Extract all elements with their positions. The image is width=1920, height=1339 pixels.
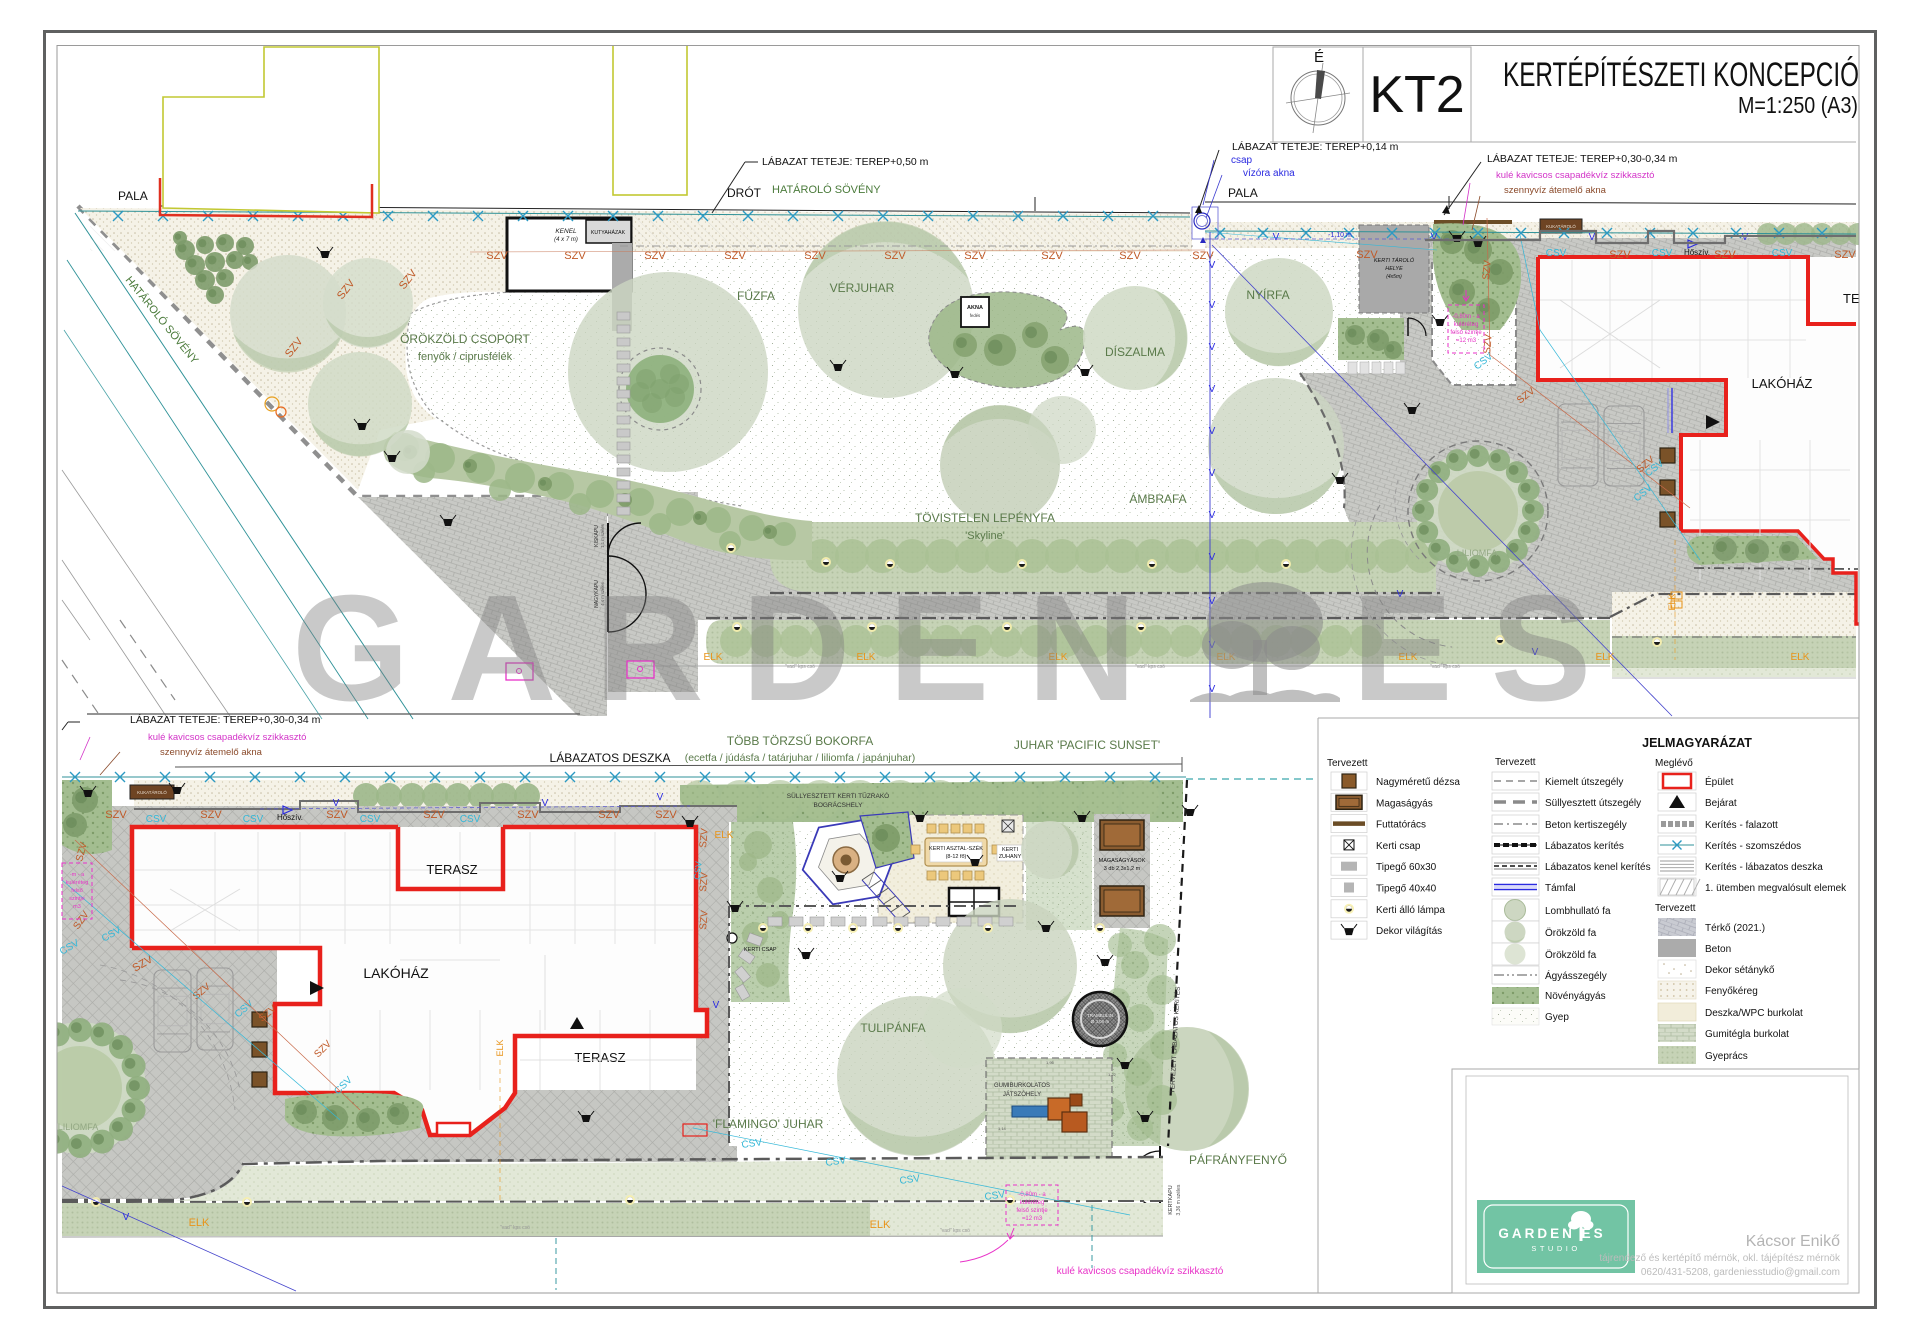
svg-text:FŰZFA: FŰZFA xyxy=(737,288,775,303)
svg-text:VÉRJUHAR: VÉRJUHAR xyxy=(830,280,895,295)
svg-text:KT2: KT2 xyxy=(1369,66,1464,124)
svg-text:HELYE: HELYE xyxy=(1385,266,1403,272)
svg-text:kuléréteg: kuléréteg xyxy=(66,880,89,886)
svg-text:(4 x 7 m): (4 x 7 m) xyxy=(554,237,578,243)
svg-text:SZV: SZV xyxy=(423,809,445,821)
svg-text:(8-12 fő): (8-12 fő) xyxy=(946,854,967,860)
svg-text:Hőszív.: Hőszív. xyxy=(277,813,303,822)
svg-text:ELK: ELK xyxy=(495,1039,505,1056)
svg-text:NYÍRFA: NYÍRFA xyxy=(1246,287,1289,302)
svg-text:ELK: ELK xyxy=(1667,593,1677,610)
svg-text:"vad" kps csö: "vad" kps csö xyxy=(940,1228,970,1234)
svg-text:LILIOMFA: LILIOMFA xyxy=(1457,548,1498,558)
svg-text:KUKATÁROLÓ: KUKATÁROLÓ xyxy=(137,790,167,795)
svg-text:SZV: SZV xyxy=(964,250,986,262)
svg-text:1,95: 1,95 xyxy=(1046,1060,1055,1065)
svg-text:felső szintje: felső szintje xyxy=(1450,330,1482,336)
svg-text:KERTÉPÍTÉSZETI KONCEPCIÓ: KERTÉPÍTÉSZETI KONCEPCIÓ xyxy=(1503,56,1859,94)
svg-text:V: V xyxy=(1589,232,1596,243)
svg-text:Lábazatos kenel kerítés: Lábazatos kenel kerítés xyxy=(1545,862,1651,873)
svg-text:felső: felső xyxy=(71,888,83,894)
svg-text:Beton kertiszegély: Beton kertiszegély xyxy=(1545,820,1627,831)
svg-text:Gyeprács: Gyeprács xyxy=(1705,1051,1748,1062)
svg-text:JELMAGYARÁZAT: JELMAGYARÁZAT xyxy=(1642,735,1752,750)
svg-text:ÁMBRAFA: ÁMBRAFA xyxy=(1129,491,1186,506)
svg-text:Magaságyás: Magaságyás xyxy=(1376,798,1433,809)
svg-text:Beton: Beton xyxy=(1705,944,1731,955)
svg-text:TERASZ: TERASZ xyxy=(574,1050,625,1065)
svg-text:Kerti álló lámpa: Kerti álló lámpa xyxy=(1376,905,1445,916)
svg-text:ELK: ELK xyxy=(1791,652,1810,663)
svg-text:SZV: SZV xyxy=(884,250,906,262)
svg-text:Kácsor Enikő: Kácsor Enikő xyxy=(1746,1233,1840,1250)
svg-text:-m - a: -m - a xyxy=(70,872,85,878)
svg-text:CSV: CSV xyxy=(460,814,481,825)
svg-text:SZV: SZV xyxy=(1119,250,1141,262)
svg-text:V: V xyxy=(1209,260,1216,271)
svg-text:kulé kavicsos csapadékvíz szik: kulé kavicsos csapadékvíz szikkasztó xyxy=(1057,1266,1224,1277)
svg-text:LILIOMFA: LILIOMFA xyxy=(58,1122,99,1132)
svg-text:Tervezett: Tervezett xyxy=(1495,757,1536,768)
svg-text:KERTI CSAP: KERTI CSAP xyxy=(744,947,777,953)
svg-text:kulé kavicsos csapadékvíz szik: kulé kavicsos csapadékvíz szikkasztó xyxy=(1496,170,1654,181)
svg-text:-1,10 m: -1,10 m xyxy=(1328,232,1352,239)
svg-text:tájrendező és kertépítő mérnök: tájrendező és kertépítő mérnök, okl. táj… xyxy=(1599,1253,1841,1264)
svg-text:MAGASÁGYÁSOK: MAGASÁGYÁSOK xyxy=(1099,857,1146,864)
svg-text:SZV: SZV xyxy=(1356,249,1378,261)
svg-text:TÖVISTELEN LEPÉNYFA: TÖVISTELEN LEPÉNYFA xyxy=(915,510,1055,525)
svg-text:1,22: 1,22 xyxy=(1108,1072,1117,1077)
svg-text:TULIPÁNFA: TULIPÁNFA xyxy=(860,1020,925,1035)
svg-text:Növényágyás: Növényágyás xyxy=(1545,991,1606,1002)
svg-text:LÁBAZAT TETEJE: TEREP+0,50 m: LÁBAZAT TETEJE: TEREP+0,50 m xyxy=(762,155,929,168)
svg-text:m3: m3 xyxy=(73,904,81,910)
svg-text:V: V xyxy=(1209,300,1216,311)
svg-text:SZV: SZV xyxy=(1609,249,1631,261)
svg-text:fedés: fedés xyxy=(970,313,980,318)
svg-text:KENEL: KENEL xyxy=(555,228,577,235)
svg-text:Dekor sétánykő: Dekor sétánykő xyxy=(1705,965,1775,976)
svg-text:1,14: 1,14 xyxy=(998,1126,1007,1131)
svg-text:'Skyline': 'Skyline' xyxy=(965,530,1005,542)
svg-text:Deszka/WPC burkolat: Deszka/WPC burkolat xyxy=(1705,1008,1803,1019)
svg-text:ELK: ELK xyxy=(870,1219,891,1231)
svg-text:SZV: SZV xyxy=(564,250,586,262)
svg-text:Fenyőkéreg: Fenyőkéreg xyxy=(1705,986,1758,997)
svg-text:Tipegő 40x40: Tipegő 40x40 xyxy=(1376,884,1437,895)
svg-text:Örökzöld fa: Örökzöld fa xyxy=(1545,927,1597,939)
svg-text:1. ütemben megvalósult elemek: 1. ütemben megvalósult elemek xyxy=(1705,883,1847,894)
svg-text:V: V xyxy=(1273,232,1280,243)
svg-text:V: V xyxy=(542,798,549,809)
svg-text:V: V xyxy=(123,1212,130,1223)
svg-text:JÁTSZÓHELY: JÁTSZÓHELY xyxy=(1003,1091,1041,1098)
svg-text:Kiemelt útszegély: Kiemelt útszegély xyxy=(1545,777,1623,788)
svg-text:CSV: CSV xyxy=(360,814,381,825)
svg-text:V: V xyxy=(657,792,664,803)
svg-text:3,36 m széles: 3,36 m széles xyxy=(1176,1184,1182,1215)
svg-text:(ecetfa / júdásfa / tatárjuhar: (ecetfa / júdásfa / tatárjuhar / liliomf… xyxy=(685,752,916,764)
svg-text:ÖRÖKZÖLD CSOPORT: ÖRÖKZÖLD CSOPORT xyxy=(400,332,530,346)
svg-text:Lombhullató fa: Lombhullató fa xyxy=(1545,906,1611,917)
svg-text:KERTI ASZTAL-SZÉK: KERTI ASZTAL-SZÉK xyxy=(929,845,983,852)
svg-text:=12 m3: =12 m3 xyxy=(1022,1216,1043,1222)
svg-text:KUTYAHÁZAK: KUTYAHÁZAK xyxy=(591,229,626,236)
svg-text:SZV: SZV xyxy=(655,809,677,821)
svg-text:SZV: SZV xyxy=(644,250,666,262)
svg-text:É: É xyxy=(1314,49,1324,66)
svg-text:SZV: SZV xyxy=(105,809,127,821)
svg-text:PALA: PALA xyxy=(1228,186,1258,200)
svg-text:Dekor világítás: Dekor világítás xyxy=(1376,926,1442,937)
svg-text:Örökzöld fa: Örökzöld fa xyxy=(1545,949,1597,961)
svg-text:SZV: SZV xyxy=(517,809,539,821)
svg-text:GARDEN: GARDEN xyxy=(292,563,1174,732)
svg-text:ELK: ELK xyxy=(189,1217,210,1229)
svg-text:Tervezett: Tervezett xyxy=(1655,903,1696,914)
svg-text:LÁBAZATOS DESZKA: LÁBAZATOS DESZKA xyxy=(550,750,671,765)
svg-text:vízóra akna: vízóra akna xyxy=(1243,168,1295,179)
svg-text:Kerti csap: Kerti csap xyxy=(1376,841,1421,852)
svg-text:SZV: SZV xyxy=(698,828,711,849)
svg-text:Kerítés - szomszédos: Kerítés - szomszédos xyxy=(1705,841,1801,852)
svg-text:PÁFRÁNYFENYŐ: PÁFRÁNYFENYŐ xyxy=(1189,1152,1287,1167)
svg-text:Ø 3,06 m: Ø 3,06 m xyxy=(1091,1019,1110,1024)
svg-text:Térkő (2021.): Térkő (2021.) xyxy=(1705,923,1765,934)
svg-text:"vad" kps csö: "vad" kps csö xyxy=(500,1225,530,1231)
svg-text:ZUHANY: ZUHANY xyxy=(999,854,1022,860)
svg-text:szennyvíz átemelő akna: szennyvíz átemelő akna xyxy=(160,747,263,758)
svg-text:V: V xyxy=(1431,232,1438,243)
svg-text:LÁBAZAT TETEJE: TEREP+0,30-0,3: LÁBAZAT TETEJE: TEREP+0,30-0,34 m xyxy=(1487,152,1678,165)
svg-text:V: V xyxy=(1209,510,1216,521)
svg-text:fenyők / ciprusfélék: fenyők / ciprusfélék xyxy=(418,351,513,363)
svg-text:SZV: SZV xyxy=(326,809,348,821)
svg-text:Futtatórács: Futtatórács xyxy=(1376,820,1426,831)
svg-text:Tipegő 60x30: Tipegő 60x30 xyxy=(1376,862,1437,873)
svg-text:SÜLLYESZTETT KERTI TŰZRAKÓ: SÜLLYESZTETT KERTI TŰZRAKÓ xyxy=(787,791,889,800)
svg-text:Hőszív.: Hőszív. xyxy=(1684,248,1710,257)
svg-text:V: V xyxy=(713,1000,720,1011)
svg-text:TÖBB TÖRZSŰ BOKORFA: TÖBB TÖRZSŰ BOKORFA xyxy=(727,733,873,748)
svg-text:3 db 2,3x1,2 m: 3 db 2,3x1,2 m xyxy=(1104,866,1141,872)
svg-text:kuléréteg: kuléréteg xyxy=(1020,1200,1045,1206)
svg-text:TRAMBULIN: TRAMBULIN xyxy=(1087,1013,1113,1018)
svg-text:M=1:250 (A3): M=1:250 (A3) xyxy=(1738,92,1858,118)
svg-text:Kerítés - falazott: Kerítés - falazott xyxy=(1705,820,1778,831)
svg-text:Tervezett: Tervezett xyxy=(1327,758,1368,769)
svg-text:Támfal: Támfal xyxy=(1545,883,1576,894)
svg-text:JUHAR 'PACIFIC SUNSET': JUHAR 'PACIFIC SUNSET' xyxy=(1014,738,1160,752)
svg-text:kuléréteg: kuléréteg xyxy=(1454,322,1479,328)
svg-text:SZV: SZV xyxy=(698,910,711,931)
svg-text:CSV: CSV xyxy=(692,861,704,880)
svg-text:felső szintje: felső szintje xyxy=(1016,1208,1048,1214)
svg-text:szennyvíz átemelő akna: szennyvíz átemelő akna xyxy=(1504,185,1607,196)
svg-text:=12 m3: =12 m3 xyxy=(1456,338,1477,344)
svg-text:DRÓT: DRÓT xyxy=(727,185,762,200)
svg-text:V: V xyxy=(333,798,340,809)
svg-text:CSV: CSV xyxy=(146,814,167,825)
svg-text:KERTI: KERTI xyxy=(1002,847,1019,853)
svg-text:kulé kavicsos csapadékvíz szik: kulé kavicsos csapadékvíz szikkasztó xyxy=(148,732,306,743)
svg-text:KUKATÁROLÓ: KUKATÁROLÓ xyxy=(1546,224,1576,229)
svg-text:GUMIBURKOLATOS: GUMIBURKOLATOS xyxy=(994,1083,1050,1089)
svg-text:V: V xyxy=(1209,342,1216,353)
svg-text:CSV: CSV xyxy=(1652,248,1673,259)
svg-text:szintje: szintje xyxy=(69,896,85,902)
svg-text:Gyep: Gyep xyxy=(1545,1012,1569,1023)
svg-text:KERTI TÁROLÓ: KERTI TÁROLÓ xyxy=(1374,257,1415,264)
svg-text:STUDIO: STUDIO xyxy=(1531,1244,1580,1253)
svg-text:1,1 m széles: 1,1 m széles xyxy=(600,524,605,548)
svg-text:AKNA: AKNA xyxy=(967,305,983,311)
svg-text:Épület: Épület xyxy=(1705,775,1734,788)
svg-text:CSV: CSV xyxy=(243,814,264,825)
svg-text:Gumitégla burkolat: Gumitégla burkolat xyxy=(1705,1029,1789,1040)
svg-text:V: V xyxy=(1742,232,1749,243)
svg-text:SZV: SZV xyxy=(200,809,222,821)
svg-text:SZV: SZV xyxy=(1834,249,1856,261)
svg-text:csap: csap xyxy=(1231,155,1253,166)
svg-text:ELK: ELK xyxy=(715,830,734,841)
svg-text:LAKÓHÁZ: LAKÓHÁZ xyxy=(363,965,429,981)
svg-text:Kerítés - lábazatos deszka: Kerítés - lábazatos deszka xyxy=(1705,862,1823,873)
svg-text:LÁBAZAT TETEJE: TEREP+0,30-0,3: LÁBAZAT TETEJE: TEREP+0,30-0,34 m xyxy=(130,713,321,726)
svg-text:Bejárat: Bejárat xyxy=(1705,798,1737,809)
svg-text:-0,80m - a: -0,80m - a xyxy=(1452,314,1480,320)
svg-text:SZV: SZV xyxy=(1481,260,1494,281)
svg-text:TERASZ: TERASZ xyxy=(426,862,477,877)
svg-text:KERTKAPU: KERTKAPU xyxy=(1168,1185,1174,1215)
svg-text:V: V xyxy=(1209,384,1216,395)
svg-text:SZV: SZV xyxy=(804,250,826,262)
svg-text:SZV: SZV xyxy=(486,250,508,262)
svg-text:Lábazatos kerítés: Lábazatos kerítés xyxy=(1545,841,1624,852)
svg-text:PALA: PALA xyxy=(118,189,148,203)
svg-text:(4x5m): (4x5m) xyxy=(1386,274,1402,280)
svg-text:SZV: SZV xyxy=(1714,249,1736,261)
svg-text:SZV: SZV xyxy=(1041,250,1063,262)
svg-text:LAKÓHÁZ: LAKÓHÁZ xyxy=(1752,376,1813,391)
svg-text:V: V xyxy=(1209,468,1216,479)
svg-text:V: V xyxy=(1209,552,1216,563)
svg-text:Ágyásszegély: Ágyásszegély xyxy=(1545,969,1607,982)
svg-text:-0,80m - a: -0,80m - a xyxy=(1018,1192,1046,1198)
svg-text:V: V xyxy=(1209,426,1216,437)
svg-text:CSV: CSV xyxy=(1772,248,1793,259)
svg-text:Meglévő: Meglévő xyxy=(1655,758,1693,769)
svg-text:HATÁROLÓ SÖVÉNY: HATÁROLÓ SÖVÉNY xyxy=(772,183,881,196)
svg-text:ES: ES xyxy=(1352,563,1629,732)
svg-text:Süllyesztett útszegély: Süllyesztett útszegély xyxy=(1545,798,1641,809)
svg-text:BOGRÁCSHELY: BOGRÁCSHELY xyxy=(813,800,863,809)
svg-text:DÍSZALMA: DÍSZALMA xyxy=(1105,344,1165,359)
svg-text:SZV: SZV xyxy=(724,250,746,262)
svg-text:CSV: CSV xyxy=(1546,248,1567,259)
svg-text:Nagyméretű dézsa: Nagyméretű dézsa xyxy=(1376,777,1460,788)
svg-text:SZV: SZV xyxy=(598,809,620,821)
svg-text:0620/431-5208, gardeniesstudio: 0620/431-5208, gardeniesstudio@gmail.com xyxy=(1641,1267,1840,1278)
